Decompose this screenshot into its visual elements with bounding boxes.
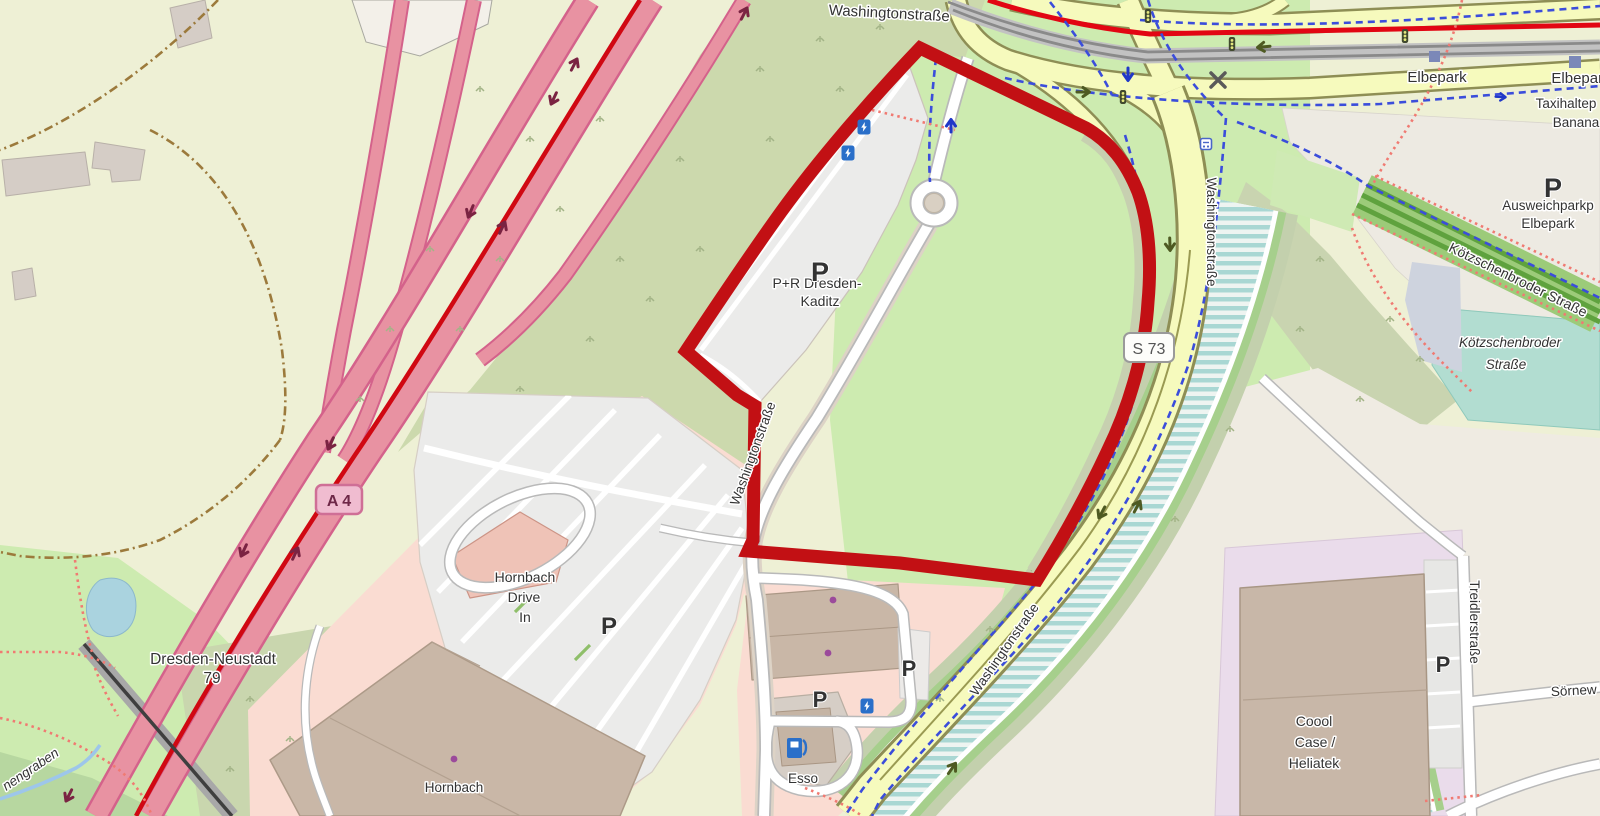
poi-label-pr-2: Kaditz	[801, 293, 840, 309]
tram-stop-icon	[1569, 56, 1581, 68]
charging-station-icon	[861, 699, 874, 714]
tram-stop-label-elbepark-2: Elbepark	[1551, 70, 1600, 87]
pond	[86, 578, 136, 637]
map-viewport[interactable]: Washingtonstraße Elbepark Elbepark Taxih…	[0, 0, 1600, 816]
parking-icon-pr: P	[811, 257, 829, 287]
charging-station-icon	[858, 120, 871, 135]
shield-a4: A 4	[316, 485, 362, 514]
street-label-treidlerstrasse: Treidlerstraße	[1467, 580, 1482, 664]
exit-label-dresden-neustadt: Dresden-Neustadt	[150, 651, 276, 668]
building-label-coool-1: Coool	[1296, 713, 1333, 729]
tram-stop-label-elbepark: Elbepark	[1407, 69, 1467, 86]
poi-label-banana: Banana	[1553, 115, 1600, 130]
poi-dot-icon	[825, 650, 832, 657]
parking-icon: P	[902, 656, 917, 681]
street-label-washingtonstrasse-vertical: Washingtonstraße	[1204, 177, 1219, 286]
parking-icon: P	[601, 613, 617, 640]
parking-label-ausweich-2: Elbepark	[1521, 216, 1575, 231]
poi-dot-icon	[451, 756, 458, 763]
poi-dot-icon	[830, 597, 837, 604]
street-label-soernewitzer: Sörnew	[1551, 682, 1598, 699]
parking-icon: P	[1436, 652, 1451, 677]
farm-building	[12, 268, 36, 300]
parking-icon: P	[1544, 173, 1562, 203]
exit-number-label: 79	[203, 670, 220, 687]
poi-label-taxi: Taxihaltep	[1536, 96, 1597, 111]
tram-stop-icon	[1429, 51, 1440, 62]
svg-text:S 73: S 73	[1133, 341, 1166, 358]
bus-stop-icon	[1201, 139, 1212, 150]
building-label-coool-3: Heliatek	[1289, 755, 1341, 771]
traffic-light-icon	[1145, 9, 1151, 23]
parking-icon: P	[813, 687, 828, 712]
building-label-drive-in-1: Hornbach	[495, 569, 556, 585]
shop-label-hornbach: Hornbach	[425, 780, 484, 795]
building-label-coool-2: Case /	[1295, 734, 1336, 750]
traffic-light-icon	[1229, 37, 1235, 51]
poi-label-esso: Esso	[788, 771, 818, 786]
map-canvas[interactable]: Washingtonstraße Elbepark Elbepark Taxih…	[0, 0, 1600, 816]
shield-s73: S 73	[1124, 333, 1174, 362]
area-label-koetzschenbroder-1: Kötzschenbroder	[1459, 335, 1562, 350]
traffic-light-icon	[1120, 90, 1126, 104]
traffic-light-icon	[1402, 29, 1408, 43]
svg-text:A 4: A 4	[327, 493, 351, 510]
building-label-drive-in-2: Drive	[508, 589, 541, 605]
charging-station-icon	[842, 146, 855, 161]
building-label-drive-in-3: In	[519, 609, 531, 625]
area-label-koetzschenbroder-2: Straße	[1486, 357, 1527, 372]
